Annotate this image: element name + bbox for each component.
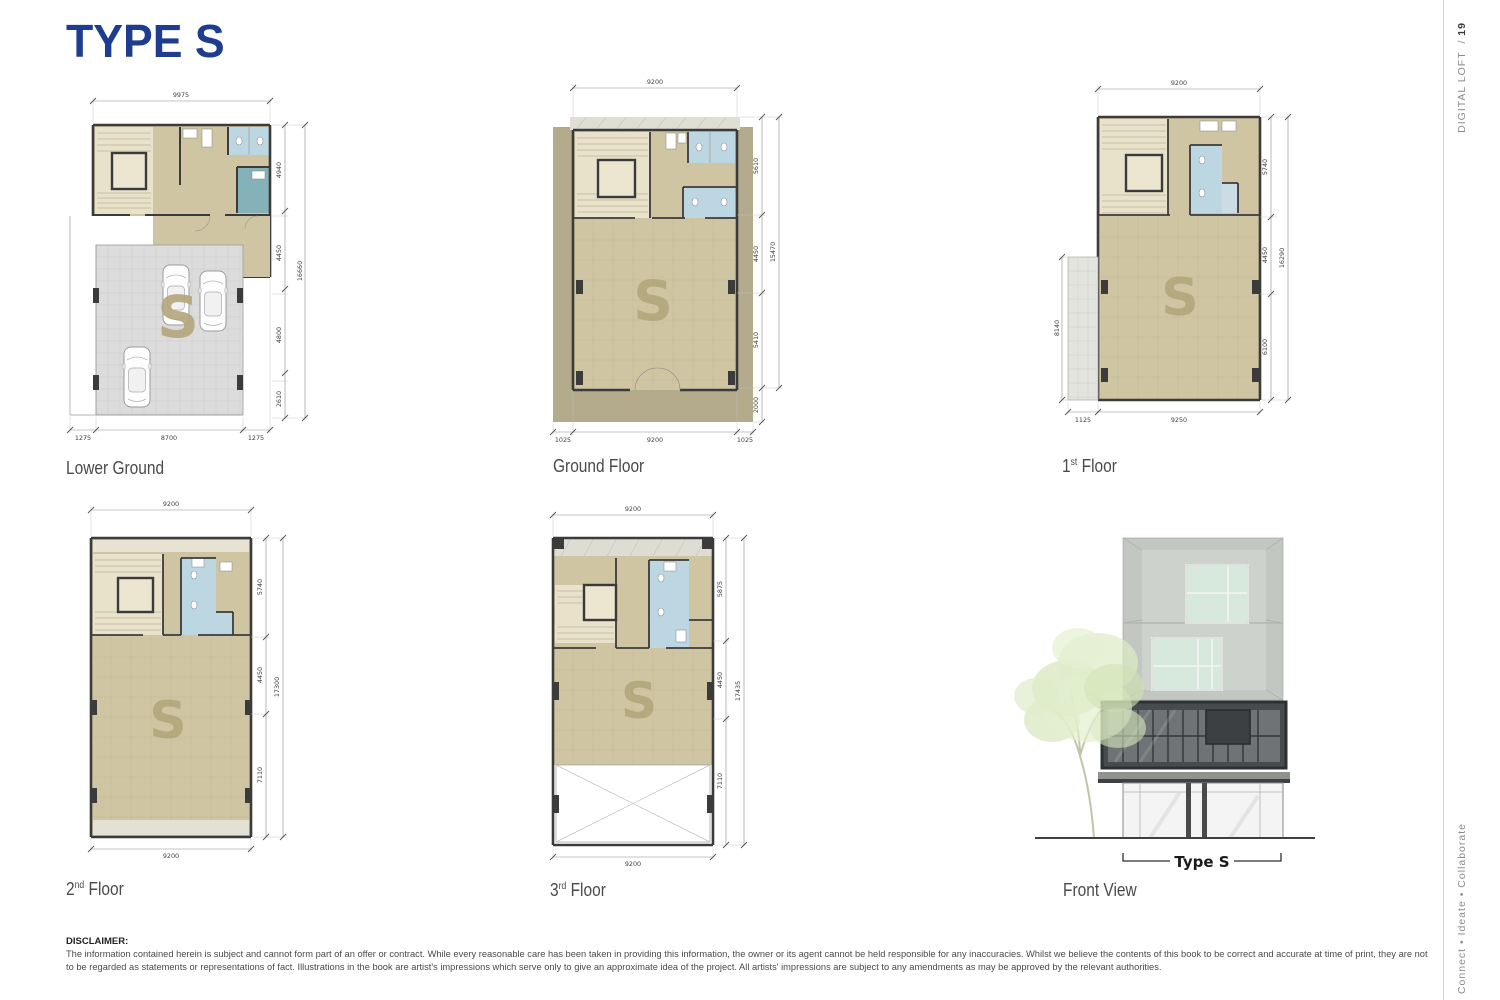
dim-label: 7110 (256, 767, 264, 783)
disclaimer: DISCLAIMER: The information contained he… (66, 936, 1434, 975)
lower-ground-plan-panel: 9975 S (60, 85, 350, 460)
front-view-panel: Type S (990, 520, 1330, 880)
wc (216, 612, 233, 635)
first-floor-plan: 9200 S 8140 5740 4450 (1050, 75, 1320, 460)
dim-label: 4450 (716, 672, 724, 688)
type-watermark: S (621, 672, 657, 730)
wc (1222, 183, 1238, 213)
porch (243, 245, 270, 277)
dim-label: 9200 (1171, 79, 1187, 87)
dim-label: 4450 (275, 245, 283, 261)
third-floor-plan-panel: 9200 S 5875 4450 7110 (536, 500, 816, 910)
dim-label: 2000 (752, 397, 760, 413)
dim-label: 7110 (716, 773, 724, 789)
ordinal: rd (559, 881, 567, 892)
label-first-floor: 1st Floor (1062, 456, 1117, 477)
roof-eave (570, 117, 740, 130)
dim-right: 5740 4450 7110 17300 (251, 535, 286, 840)
dim-label: 17435 (734, 681, 742, 701)
dim-label: 16660 (296, 261, 304, 281)
second-floor-plan-panel: 9200 S 5740 4450 7110 17300 (58, 500, 338, 905)
bathroom (1190, 145, 1222, 213)
car-icon (198, 271, 228, 331)
sidebar-publication: DIGITAL LOFT / 19 (1456, 22, 1468, 133)
dim-label: 4450 (256, 667, 264, 683)
dim-label: 15470 (769, 242, 777, 262)
sidebar-tagline: Connect • Ideate • Collaborate (1456, 823, 1468, 994)
third-floor-plan: 9200 S 5875 4450 7110 (536, 500, 816, 905)
lift-shaft (118, 578, 153, 612)
dim-label: 4450 (752, 246, 760, 262)
lift-shaft (598, 160, 635, 197)
dim-label: 5875 (716, 581, 724, 597)
first-floor-plan-panel: 9200 S 8140 5740 4450 (1050, 75, 1320, 465)
dim-label: 5410 (752, 332, 760, 348)
roof-eave (553, 538, 713, 556)
type-watermark: S (633, 269, 673, 333)
publication-name: DIGITAL LOFT (1456, 51, 1468, 132)
dim-label: 1275 (248, 434, 264, 442)
front-elevation: Type S (990, 520, 1330, 875)
dim-label: 5740 (1261, 159, 1269, 175)
dim-label: 16290 (1278, 248, 1286, 268)
balcony-strip (93, 820, 249, 835)
view-name: Front View (1063, 880, 1137, 900)
window-upper (1186, 565, 1248, 623)
dim-label: 9250 (1171, 416, 1187, 424)
dim-top: 9200 (550, 505, 716, 536)
dim-top: 9200 (1095, 79, 1263, 115)
dim-bottom: 9200 (88, 839, 254, 860)
dim-label: 9200 (647, 78, 663, 86)
dim-right: 5740 4450 6100 16290 (1260, 114, 1291, 403)
label-front-view: Front View (1063, 880, 1137, 901)
dim-label: 9200 (625, 860, 641, 868)
sliding-pane (1206, 710, 1250, 744)
dim-top: 9200 (88, 500, 254, 536)
ordinal: nd (75, 880, 85, 891)
lift-shaft (1126, 155, 1162, 191)
dim-label: 5610 (752, 158, 760, 174)
dim-top: 9200 (570, 78, 740, 117)
dim-label: 9200 (163, 852, 179, 860)
type-watermark: S (157, 283, 199, 351)
entry-area (153, 216, 270, 245)
ordinal: st (1071, 457, 1078, 468)
dim-label: 6100 (1261, 339, 1269, 355)
dim-label: 8140 (1053, 320, 1061, 336)
dim-label: 1125 (1075, 416, 1091, 424)
dim-top: 9975 (90, 91, 273, 123)
dim-label: 4450 (1261, 247, 1269, 263)
floor-name: Ground Floor (553, 456, 644, 476)
type-watermark: S (1161, 268, 1198, 328)
lift-shaft (584, 585, 616, 620)
label-ground-floor: Ground Floor (553, 456, 644, 477)
dim-left: 8140 (1053, 254, 1068, 403)
floor-name: 2 (66, 879, 75, 899)
dim-right: 5875 4450 7110 17435 (713, 535, 747, 848)
car-icon (122, 347, 152, 407)
dim-label: 9200 (163, 500, 179, 508)
label-second-floor: 2nd Floor (66, 879, 124, 900)
second-floor-plan: 9200 S 5740 4450 7110 17300 (58, 500, 338, 900)
dim-label: 9200 (647, 436, 663, 444)
disclaimer-body: The information contained herein is subj… (66, 948, 1434, 975)
separator: / (1456, 40, 1468, 44)
ground-floor-plan-panel: 9200 S 5610 4450 5410 (540, 75, 830, 465)
dim-bottom: 1125 9250 (1065, 402, 1263, 424)
disclaimer-heading: DISCLAIMER: (66, 936, 1434, 947)
dim-label: 9975 (173, 91, 189, 99)
page-number: 19 (1456, 22, 1468, 36)
type-tag-label: Type S (1174, 853, 1229, 871)
ground-floor-plan: 9200 S 5610 4450 5410 (540, 75, 830, 460)
floor-name: 3 (550, 880, 559, 900)
sidebar-divider (1443, 0, 1444, 1000)
roof-edge (93, 540, 249, 552)
dim-label: 1025 (737, 436, 753, 444)
dim-label: 9200 (625, 505, 641, 513)
bathroom (688, 132, 735, 163)
dim-label: 1025 (555, 436, 571, 444)
dim-label: 5740 (256, 579, 264, 595)
floor-word: Floor (88, 879, 123, 899)
floor-word: Floor (571, 880, 606, 900)
label-lower-ground: Lower Ground (66, 458, 164, 479)
terrace (1068, 257, 1098, 400)
dim-label: 17300 (273, 677, 281, 697)
dim-label: 1275 (75, 434, 91, 442)
dim-right: 4940 4450 4800 2610 16660 (272, 122, 308, 421)
bathroom (181, 558, 216, 635)
type-tag: Type S (1123, 853, 1281, 871)
floor-word: Floor (1082, 456, 1117, 476)
canopy (1098, 772, 1290, 779)
page-title: TYPE S (66, 14, 225, 68)
label-third-floor: 3rd Floor (550, 880, 606, 901)
floor-name: 1 (1062, 456, 1071, 476)
dim-bottom: 9200 (550, 847, 716, 868)
lower-ground-floor-plan: 9975 S (60, 85, 350, 455)
lift-shaft (112, 153, 146, 189)
type-watermark: S (149, 691, 186, 751)
dim-label: 4800 (275, 327, 283, 343)
dim-label: 2610 (275, 391, 283, 407)
floor-name: Lower Ground (66, 458, 164, 478)
tagline-text: Connect • Ideate • Collaborate (1456, 823, 1468, 994)
dim-label: 4940 (275, 162, 283, 178)
dim-label: 8700 (161, 434, 177, 442)
brochure-page: TYPE S 9975 (0, 0, 1500, 1000)
